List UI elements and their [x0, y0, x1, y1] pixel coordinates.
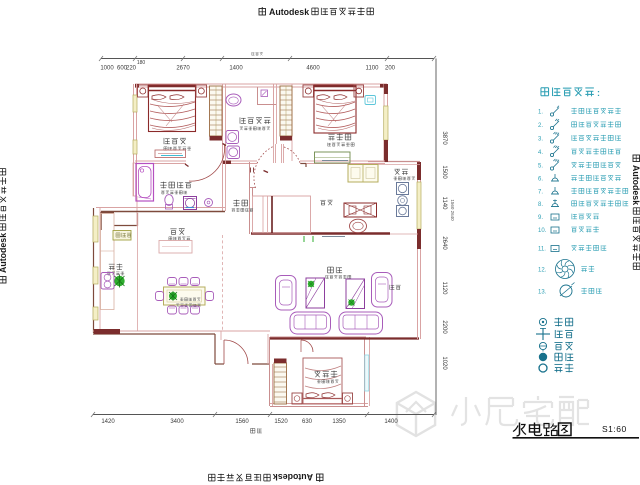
svg-text:11.: 11.: [538, 247, 546, 253]
svg-text:1400: 1400: [229, 66, 243, 72]
svg-text:13.: 13.: [538, 290, 547, 296]
svg-text:2200: 2200: [441, 320, 447, 334]
svg-text:1420: 1420: [101, 419, 115, 425]
svg-text:1100: 1100: [366, 66, 380, 72]
svg-text:1520: 1520: [274, 419, 288, 425]
svg-text:Autodesk: Autodesk: [269, 7, 309, 17]
svg-text:4600: 4600: [306, 66, 320, 72]
svg-text:1140: 1140: [441, 197, 447, 211]
svg-text:1020: 1020: [441, 356, 447, 370]
svg-text:12.: 12.: [538, 268, 547, 274]
svg-text::: :: [597, 88, 600, 98]
svg-text:4.: 4.: [538, 150, 543, 156]
svg-text:6.: 6.: [538, 177, 543, 183]
svg-text:1350: 1350: [332, 419, 346, 425]
svg-text:1560 2640: 1560 2640: [450, 199, 455, 221]
svg-text:1.: 1.: [538, 110, 543, 116]
svg-text:S1:60: S1:60: [602, 424, 627, 434]
svg-text:3400: 3400: [170, 419, 184, 425]
svg-text:Autodesk: Autodesk: [273, 472, 313, 482]
svg-text:5.: 5.: [538, 164, 543, 170]
svg-text:2640: 2640: [441, 236, 447, 250]
svg-text:1120: 1120: [441, 282, 447, 296]
svg-text:1500: 1500: [441, 165, 447, 179]
svg-text:3870: 3870: [441, 131, 447, 145]
svg-text:1560: 1560: [235, 419, 249, 425]
svg-text:Autodesk: Autodesk: [0, 233, 8, 273]
svg-text:180: 180: [137, 60, 146, 66]
svg-text:Autodesk: Autodesk: [631, 165, 640, 205]
svg-text:1000: 1000: [100, 66, 114, 72]
svg-text:10.: 10.: [538, 228, 547, 234]
svg-text:9.: 9.: [538, 215, 543, 221]
svg-text:200: 200: [385, 66, 396, 72]
svg-text:2.: 2.: [538, 123, 543, 129]
svg-text:2670: 2670: [176, 66, 190, 72]
svg-text:3.: 3.: [538, 137, 543, 143]
svg-text:8.: 8.: [538, 202, 543, 208]
svg-text:220: 220: [126, 66, 137, 72]
svg-text:7.: 7.: [538, 190, 543, 196]
svg-text:630: 630: [302, 419, 313, 425]
svg-text:1400: 1400: [384, 419, 398, 425]
